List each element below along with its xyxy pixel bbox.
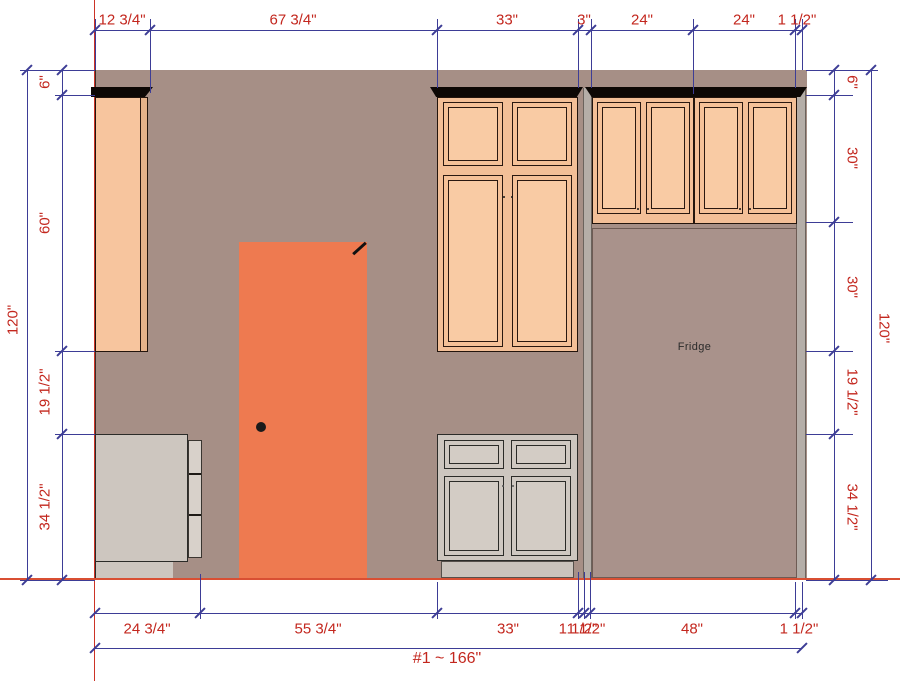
door-panel bbox=[239, 242, 367, 578]
toe-kick bbox=[441, 561, 574, 578]
cabinet-door bbox=[443, 175, 503, 347]
extension-line bbox=[806, 222, 853, 223]
dim-label: 33" bbox=[497, 621, 519, 638]
dim-label: 3" bbox=[577, 12, 591, 29]
cabinet-door bbox=[748, 102, 792, 214]
dimension-line-top bbox=[95, 30, 802, 31]
dim-label: 12 3/4" bbox=[98, 12, 145, 29]
dim-label: 24" bbox=[631, 12, 653, 29]
dim-label: 30" bbox=[844, 276, 861, 298]
dim-label: 6" bbox=[37, 75, 54, 89]
extension-line bbox=[806, 434, 853, 435]
dimension-line-right-inner bbox=[834, 70, 835, 580]
cabinet-door bbox=[646, 102, 690, 214]
hinge-dot bbox=[739, 208, 741, 210]
drawer-front bbox=[511, 440, 571, 469]
dim-label: 19 1/2" bbox=[844, 368, 861, 415]
filler-panel-left-of-fridge[interactable] bbox=[583, 88, 592, 578]
dim-label: 1 1/2" bbox=[778, 12, 817, 29]
dim-label: 33" bbox=[496, 12, 518, 29]
drawer-front bbox=[444, 440, 504, 469]
base-cabinet-door bbox=[511, 476, 571, 556]
extension-line bbox=[806, 351, 853, 352]
dimension-line-right-outer bbox=[871, 70, 872, 580]
hinge-dot bbox=[503, 196, 505, 198]
extension-line bbox=[806, 95, 853, 96]
dim-label: 67 3/4" bbox=[269, 12, 316, 29]
tall-cabinet-body bbox=[95, 97, 148, 352]
dim-label-overall: 120" bbox=[5, 305, 22, 335]
crown-molding-left bbox=[91, 87, 153, 97]
dimension-line-total bbox=[95, 648, 802, 649]
hinge-dot bbox=[511, 196, 513, 198]
cabinet-door bbox=[699, 102, 743, 214]
hinge-dot bbox=[749, 208, 751, 210]
fridge-label: Fridge bbox=[593, 341, 796, 353]
kitchen-elevation-drawing: Fridge bbox=[0, 0, 900, 681]
dim-label: 34 1/2" bbox=[37, 483, 54, 530]
extension-line bbox=[20, 70, 95, 71]
crown-molding-right bbox=[585, 87, 807, 97]
cabinet-door bbox=[512, 102, 572, 166]
hinge-dot bbox=[512, 485, 514, 487]
dim-label-overall: 120" bbox=[876, 313, 893, 343]
dim-label: 30" bbox=[844, 147, 861, 169]
dimension-line-left-inner bbox=[62, 70, 63, 580]
cabinet-door bbox=[512, 175, 572, 347]
dim-label: 19 1/2" bbox=[37, 368, 54, 415]
base-cabinet-left-body bbox=[95, 434, 188, 562]
total-dim-label: #1 ~ 166" bbox=[413, 650, 481, 668]
base-cabinet-door bbox=[444, 476, 504, 556]
dim-label: 1 1/2" bbox=[780, 621, 819, 638]
dim-label: 34 1/2" bbox=[844, 483, 861, 530]
drawer-gap-line bbox=[189, 473, 201, 475]
dim-label: 1 1/2" bbox=[567, 621, 606, 638]
dim-label: 60" bbox=[37, 212, 54, 234]
extension-line bbox=[806, 580, 888, 581]
cabinet-door bbox=[597, 102, 641, 214]
dim-label: 24 3/4" bbox=[123, 621, 170, 638]
extension-line bbox=[20, 580, 95, 581]
hinge-dot bbox=[647, 208, 649, 210]
crown-molding-center bbox=[430, 87, 583, 97]
dimension-line-left-outer bbox=[27, 70, 28, 580]
dim-label: 55 3/4" bbox=[294, 621, 341, 638]
hinge-dot bbox=[502, 485, 504, 487]
dim-label: 24" bbox=[733, 12, 755, 29]
drawer-gap-line bbox=[189, 514, 201, 516]
dim-label: 6" bbox=[844, 75, 861, 89]
cabinet-door bbox=[443, 102, 503, 166]
filler-panel-right-end[interactable] bbox=[796, 88, 806, 578]
base-cabinet-left-foot bbox=[95, 562, 173, 578]
hinge-dot bbox=[637, 208, 639, 210]
dim-label: 48" bbox=[681, 621, 703, 638]
floor-line bbox=[0, 578, 900, 580]
base-cabinet-front-edge bbox=[188, 440, 202, 558]
door-knob-icon bbox=[256, 422, 266, 432]
tall-cabinet-edge bbox=[140, 98, 147, 351]
fridge-area[interactable]: Fridge bbox=[592, 228, 797, 578]
